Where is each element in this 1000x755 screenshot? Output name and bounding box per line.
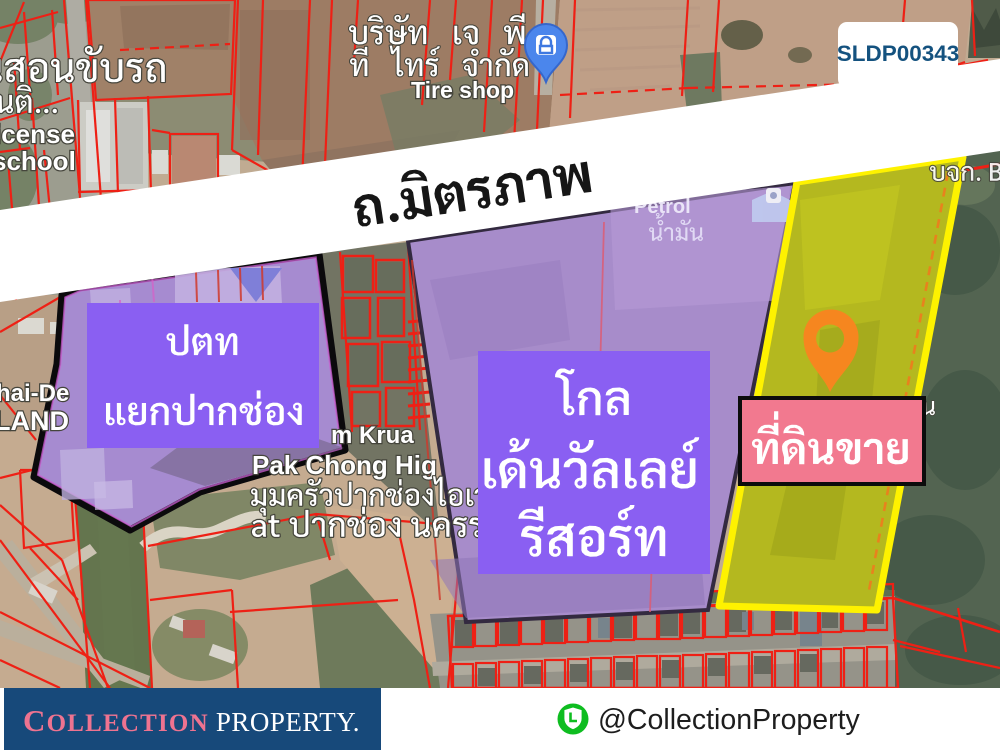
svg-text:SLDP00343: SLDP00343 bbox=[837, 41, 960, 66]
svg-text:Pak Chong Hig: Pak Chong Hig bbox=[252, 450, 437, 480]
svg-text:Tire shop: Tire shop bbox=[411, 77, 514, 103]
svg-text:hai-De: hai-De bbox=[0, 380, 69, 407]
svg-text:@CollectionProperty: @CollectionProperty bbox=[598, 704, 861, 736]
svg-text:LAND: LAND bbox=[0, 406, 69, 436]
svg-text:m Krua: m Krua bbox=[331, 422, 414, 449]
svg-text:icense: icense bbox=[0, 119, 75, 149]
svg-text:school: school bbox=[0, 146, 76, 176]
